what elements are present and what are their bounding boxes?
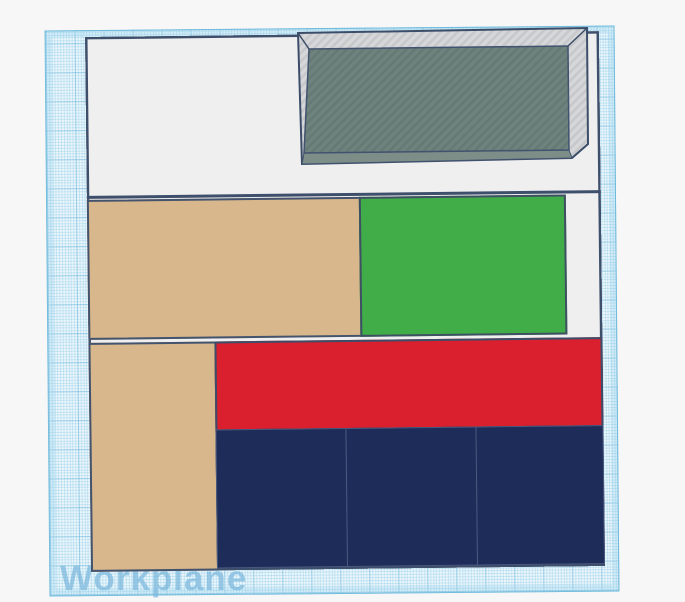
tan-tall-block[interactable] xyxy=(88,341,219,571)
red-wide-block[interactable] xyxy=(214,337,603,431)
design-canvas: Workplane xyxy=(0,0,685,602)
gray-tray-box[interactable] xyxy=(294,24,596,170)
navy-block-left[interactable] xyxy=(215,428,349,568)
gray-tray-drawing xyxy=(294,24,596,170)
navy-block-right[interactable] xyxy=(475,425,605,565)
green-block[interactable] xyxy=(359,194,568,336)
tray-floor xyxy=(304,46,569,153)
navy-block-middle[interactable] xyxy=(345,427,479,567)
tan-wide-block[interactable] xyxy=(87,197,363,340)
